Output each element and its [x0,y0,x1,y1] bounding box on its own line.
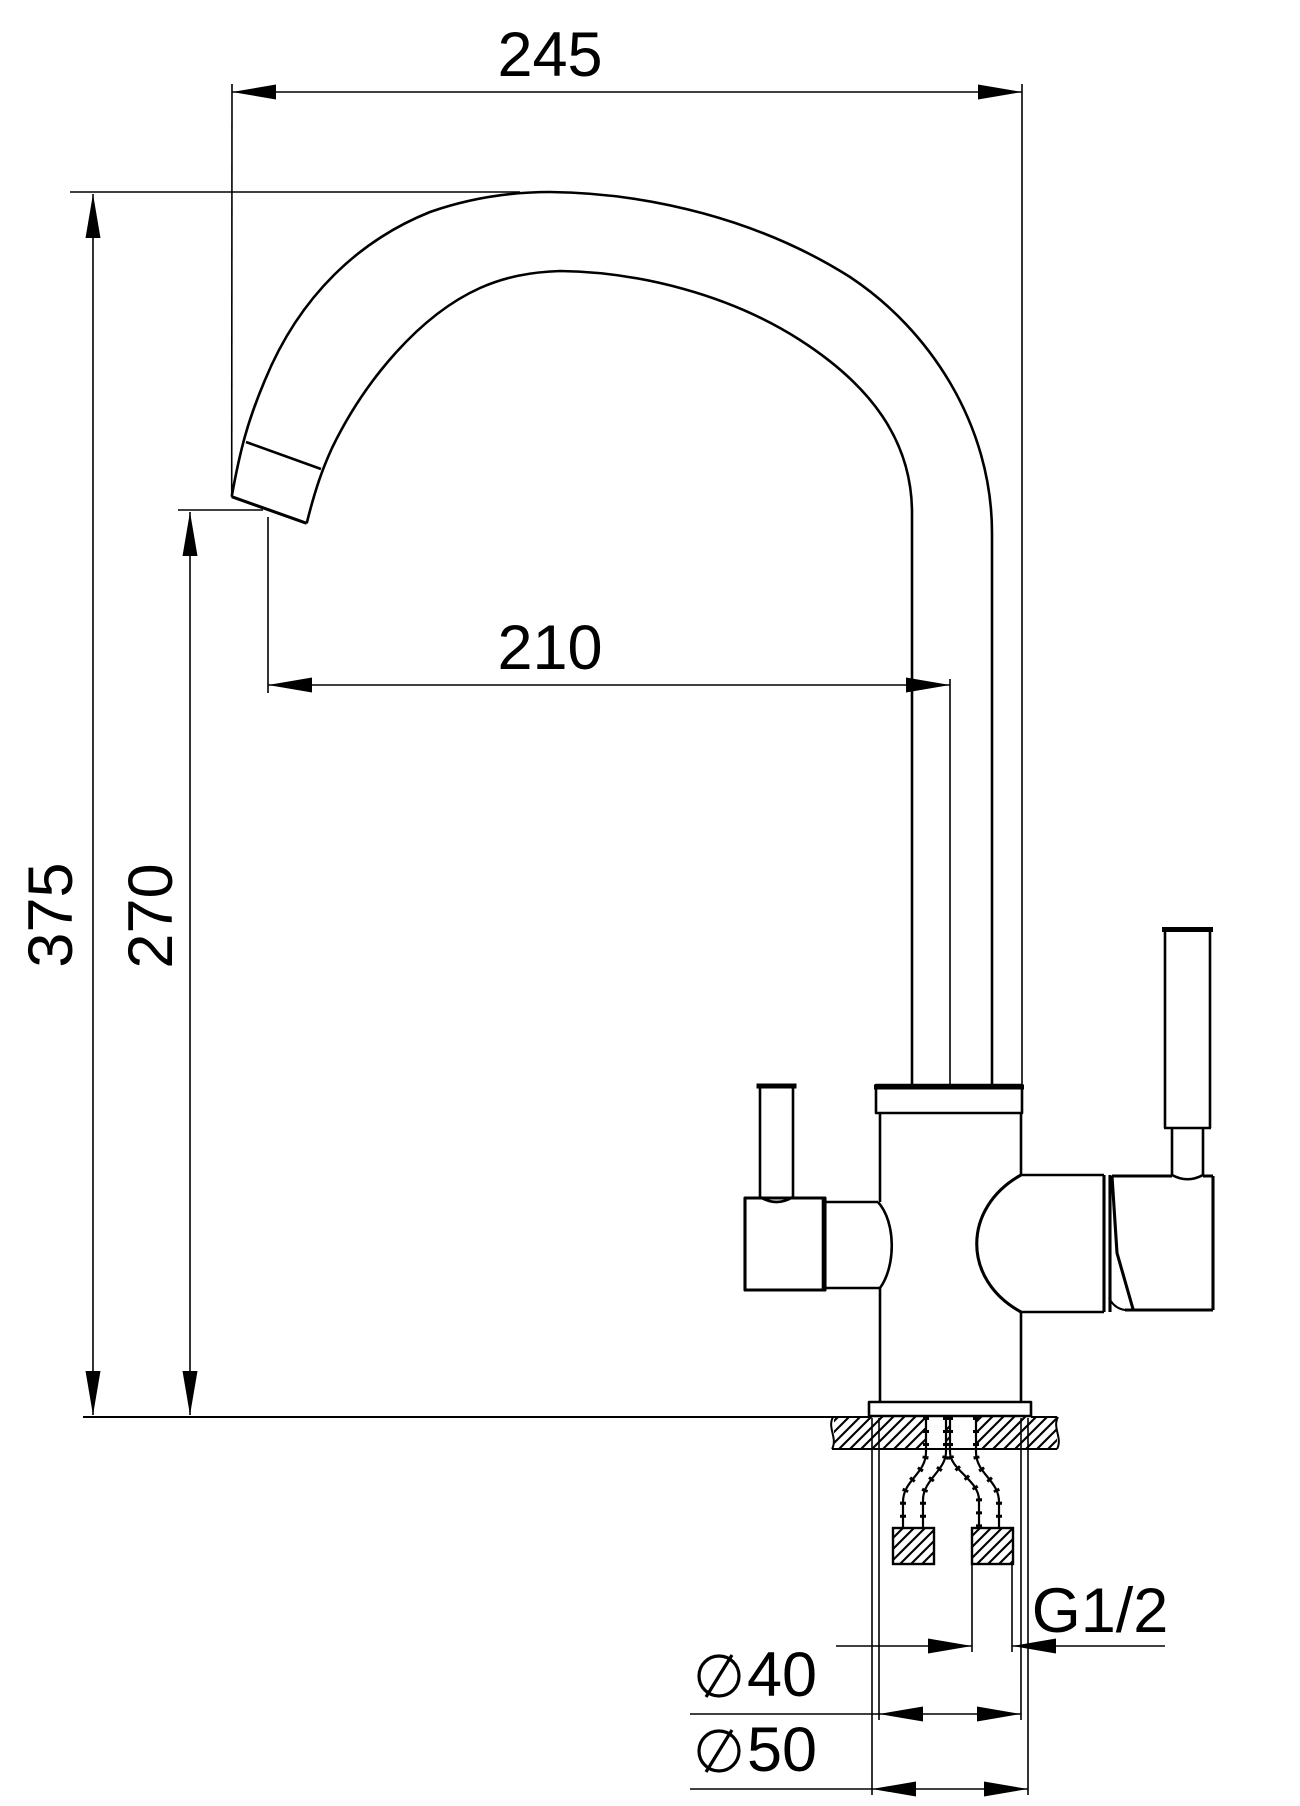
dim-d40-arrow-left [879,1707,923,1722]
right-hose-inner-wall [950,1417,979,1528]
drawing-page: 245 210 375 270 G1/2 [0,0,1300,1806]
dim-270-label: 270 [116,863,186,968]
countertop-hatch-left [834,1417,926,1449]
dim-270-arrow-top [183,512,198,556]
dimension-210: 210 [268,517,950,1085]
right-handle-sides [1165,929,1210,1128]
dim-d40-arrow-right [977,1707,1021,1722]
dim-210-arrow-left [268,678,312,693]
dim-210-label: 210 [497,613,602,683]
countertop-hatch-right [977,1417,1057,1449]
left-hose-connector [893,1528,934,1564]
right-valve-block-left [1112,1176,1133,1309]
dim-375-label: 375 [16,862,86,967]
spout-inner-curve [307,271,912,1085]
right-hose-connector [972,1528,1013,1564]
faucet-technical-drawing: 245 210 375 270 G1/2 [0,0,1300,1806]
right-handle-stem [1172,1128,1203,1175]
countertop-break-left [831,1417,834,1449]
dim-245-arrow-left [232,85,276,100]
dim-375-arrow-bottom [86,1371,101,1415]
dim-270-arrow-bottom [183,1371,198,1415]
dim-d50-label: 50 [747,1715,817,1785]
dim-245-arrow-right [978,85,1022,100]
body-right-waist-arc [977,1175,1021,1312]
right-port-joint-lines [1104,1175,1110,1312]
left-valve-block [745,1198,825,1290]
dimension-245: 245 [232,20,1022,1085]
spout-outer-curve [232,192,992,1085]
left-handle-assembly [745,1086,880,1290]
dimension-g12: G1/2 [836,1564,1168,1654]
mounting-section [83,1402,1059,1564]
left-handle-sides [760,1086,793,1197]
body-left-waist-arc [878,1202,892,1288]
spout [232,192,992,1085]
dim-d50-arrow-left [872,1782,916,1797]
dim-375-arrow-top [86,194,101,238]
dim-g12-arrow-left [928,1639,972,1654]
base-flange [869,1402,1031,1416]
diameter-symbol-slash [706,1655,732,1697]
dim-210-arrow-right [906,678,950,693]
right-handle-stem-arc [1172,1175,1203,1179]
dim-d50-arrow-right [984,1782,1028,1797]
right-hose-inner-ticks [950,1417,979,1528]
faucet-body [874,1085,1024,1403]
dim-245-label: 245 [497,20,602,90]
dim-g12-label: G1/2 [1032,1576,1169,1646]
right-handle-assembly [1021,929,1213,1312]
diameter-symbol-slash-2 [706,1730,732,1772]
dimension-270: 270 [116,510,263,1415]
dimension-d50: 50 [690,1418,1028,1797]
dim-d40-label: 40 [747,1640,817,1710]
aerator-seam-line [246,442,321,469]
